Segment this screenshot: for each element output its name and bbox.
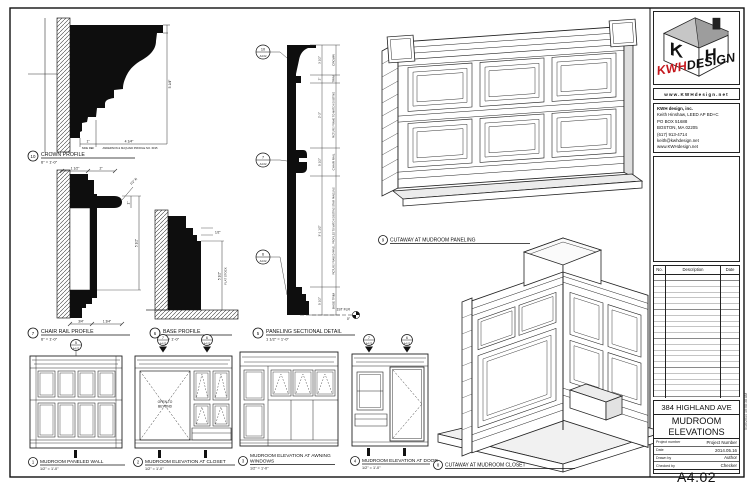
- cutaway-paneling-axon: 9 CUTAWAY AT MUDROOM PANELING: [379, 19, 643, 244]
- svg-text:PICTURE FRAMED PANEL, PROFILES: PICTURE FRAMED PANEL, PROFILES TO MATCH …: [333, 187, 336, 275]
- detail-title: MUDROOM ELEVATION AT AWNING: [250, 453, 331, 459]
- section-tick: [158, 450, 161, 458]
- wall-hatch: [57, 18, 70, 152]
- section-marker: 7 A4.02: [364, 335, 375, 353]
- svg-text:A4.02: A4.02: [160, 343, 167, 346]
- drawing-field: 1" 4 1/4" SIDE REF ANDERSON & McQUAID PR…: [0, 0, 750, 485]
- detail-title: WINDOWS: [250, 459, 274, 465]
- detail-number: 10: [31, 154, 36, 159]
- svg-text:PICTURE FRAME TO MATCH EXISTIN: PICTURE FRAME TO MATCH EXISTING: [333, 92, 336, 138]
- svg-text:A4.02: A4.02: [260, 54, 267, 58]
- open-to-beyond-note: OPEN TO: [158, 400, 173, 404]
- svg-text:A4.02: A4.02: [366, 343, 373, 346]
- rev-col-date: Date: [721, 266, 739, 274]
- svg-text:A4.02: A4.02: [204, 343, 211, 346]
- detail-scale: 1/2" = 1'-0": [250, 467, 269, 471]
- detail-number: 7: [32, 331, 35, 336]
- detail-scale: 1 1/2" = 1'-0": [266, 337, 289, 342]
- dim-text: 5 1/2": [135, 239, 139, 247]
- chair-rail-profile-detail: 1/2" R 1" 5 1/2" 3/4" 1 3/4" 7 CHAIR RAI…: [28, 170, 141, 342]
- svg-text:5 1/2": 5 1/2": [318, 297, 322, 305]
- elev-awning-windows: 3 MUDROOM ELEVATION AT AWNING WINDOWS 1/…: [239, 352, 339, 471]
- detail-title: BASE PROFILE: [163, 329, 201, 335]
- svg-text:2'-2": 2'-2": [318, 112, 322, 118]
- detail-number: 1: [32, 460, 35, 465]
- drawing-sheet: 1" 4 1/4" SIDE REF ANDERSON & McQUAID PR…: [0, 0, 750, 485]
- sheet-title: MUDROOM ELEVATIONS: [654, 415, 739, 439]
- firm-logo: K H KWHDESIGN: [653, 11, 740, 85]
- elev-closet: 7 A4.02 6 A4.02 OPEN TO BEYOND: [134, 335, 236, 472]
- svg-text:5: 5: [75, 341, 77, 345]
- detail-number: 5: [257, 331, 260, 336]
- section-marker: 6 A4.02: [202, 335, 213, 353]
- base-profile-detail: 1/2" 5 1/2" FLAT STOCK 6 BASE PROFILE 6"…: [146, 210, 238, 342]
- firm-line: www.KWHdesign.net: [657, 144, 736, 150]
- dim-text: 1": [127, 202, 131, 205]
- dim-text: 5 1/4": [168, 79, 172, 89]
- svg-text:6: 6: [262, 253, 264, 257]
- rev-col-no: No.: [654, 266, 666, 274]
- svg-text:A4.02: A4.02: [404, 343, 411, 346]
- svg-text:A4.02: A4.02: [260, 162, 267, 166]
- dim-text: 1 1/2": [71, 167, 81, 171]
- dim-text: 1 3/4": [103, 320, 111, 324]
- sheet-number: A4.02: [654, 470, 739, 485]
- open-to-beyond-note: BEYOND: [158, 405, 173, 409]
- detail-title: CROWN PROFILE: [41, 152, 85, 158]
- revision-rows: [654, 275, 739, 398]
- svg-text:A4.02: A4.02: [73, 348, 80, 351]
- dim-text: 1/2" R: [129, 176, 139, 185]
- firm-website: www.KWHdesign.net: [653, 88, 740, 100]
- detail-title: MUDROOM ELEVATION AT CLOSET: [145, 459, 226, 465]
- dim-text: 4 1/4": [125, 140, 135, 144]
- cutaway-closet-axon: 8 CUTAWAY AT MUDROOM CLOSET: [434, 238, 665, 472]
- svg-text:TRIM: TRIM: [332, 75, 336, 83]
- dim-text: 1": [86, 140, 90, 144]
- detail-number: 2: [137, 460, 140, 465]
- elev-paneled-wall: 5 A4.02 1 MUDROOM PANELED WALL: [29, 340, 126, 472]
- svg-text:6: 6: [206, 336, 208, 340]
- elev-door: 7 A4.02 6 A4.02 4 MUDROOM ELEVATION: [351, 335, 439, 471]
- consultant-box: [653, 156, 740, 262]
- section-tick: [367, 448, 370, 456]
- svg-text:5 1/2": 5 1/2": [318, 158, 322, 166]
- field-project-number: Project number Project Number: [654, 439, 739, 447]
- crown-profile-detail: 1" 4 1/4" SIDE REF ANDERSON & McQUAID PR…: [28, 18, 172, 173]
- field-date: Date 2014.05.16: [654, 447, 739, 455]
- svg-text:A4.02: A4.02: [260, 259, 267, 263]
- project-fields: Project number Project Number Date 2014.…: [654, 439, 739, 470]
- door: [390, 367, 424, 441]
- dim-text: 5 1/2": [218, 272, 222, 280]
- svg-text:BASE TRIM: BASE TRIM: [332, 292, 336, 309]
- detail-scale: 1/2" = 1'-0": [362, 466, 381, 470]
- revision-header: No. Description Date: [654, 266, 739, 275]
- plot-stamp: 5/16/2014 10:08:38 AM: [744, 393, 748, 430]
- dim-text: 2": [99, 167, 103, 171]
- section-tick: [204, 450, 207, 458]
- detail-number: 6: [154, 331, 157, 336]
- field-drawn-by: Drawn by Author: [654, 455, 739, 463]
- detail-title: PANELING SECTIONAL DETAIL: [266, 329, 342, 335]
- callout-crown-ref: 10 A4.02: [256, 45, 287, 59]
- panel-void: [70, 208, 90, 290]
- revision-table: No. Description Date: [653, 265, 740, 397]
- detail-title: MUDROOM PANELED WALL: [40, 459, 104, 465]
- svg-text:7: 7: [368, 336, 370, 340]
- detail-scale: 6" = 1'-0": [41, 337, 58, 342]
- dim-text: 3/4": [78, 320, 84, 324]
- paneling-sectional-detail: 10 A4.02 7 A4.02 6 A4.02: [253, 45, 360, 342]
- section-marker: 5 A4.02: [71, 340, 82, 357]
- sheet-title-line2: ELEVATIONS: [654, 427, 739, 438]
- bench: [192, 428, 231, 440]
- crown-silhouette: [70, 25, 163, 138]
- callout-chair-ref: 7 A4.02: [256, 153, 287, 167]
- bench: [355, 414, 387, 426]
- section-tick: [74, 450, 77, 458]
- svg-text:CHAIR RAIL: CHAIR RAIL: [332, 153, 336, 170]
- detail-scale: 6" = 1'-0": [41, 160, 58, 165]
- svg-text:CROWN: CROWN: [332, 54, 336, 66]
- detail-scale: 1/2" = 1'-0": [40, 467, 59, 471]
- project-info-block: 384 HIGHLAND AVE MUDROOM ELEVATIONS Proj…: [653, 400, 740, 474]
- svg-text:1ST FLR: 1ST FLR: [336, 308, 350, 312]
- sheet-title-line1: MUDROOM: [654, 416, 739, 427]
- detail-title: CHAIR RAIL PROFILE: [41, 329, 94, 335]
- rev-col-description: Description: [666, 266, 721, 274]
- svg-text:7: 7: [262, 156, 264, 160]
- svg-text:0": 0": [347, 317, 351, 321]
- firm-address-block: KWH design, inc. Keith Hinshaw, LEED AP …: [653, 103, 740, 153]
- section-tick: [403, 448, 406, 456]
- svg-text:3 1/2": 3 1/2": [318, 56, 322, 64]
- detail-number: 9: [382, 238, 385, 243]
- note-side-ref: SIDE REF: [82, 146, 95, 150]
- note-text: FLAT STOCK: [224, 267, 228, 285]
- note-profile-no: ANDERSON & McQUAID PROFILE NO. 6195: [102, 146, 158, 150]
- svg-text:10: 10: [261, 48, 265, 52]
- callout-base-ref: 6 A4.02: [256, 250, 287, 295]
- title-block: K H KWHDESIGN www.KWHdesign.net KWH desi…: [651, 9, 743, 476]
- detail-number: 3: [242, 459, 245, 464]
- detail-title: CUTAWAY AT MUDROOM CLOSET: [445, 463, 526, 469]
- svg-text:6: 6: [406, 336, 408, 340]
- detail-title: CUTAWAY AT MUDROOM PANELING: [390, 238, 476, 244]
- detail-number: 4: [354, 459, 357, 464]
- detail-title: MUDROOM ELEVATION AT DOOR: [362, 458, 438, 464]
- section-marker: 6 A4.02: [402, 335, 413, 353]
- detail-scale: 1/2" = 1'-0": [145, 467, 164, 471]
- svg-text:7: 7: [162, 336, 164, 340]
- field-checked-by: Checked by Checker: [654, 462, 739, 469]
- svg-text:2": 2": [318, 78, 322, 81]
- dim-text: 1/2": [215, 231, 221, 235]
- svg-text:3'-1 1/2": 3'-1 1/2": [318, 225, 322, 236]
- section-marker: 7 A4.02: [158, 335, 169, 353]
- project-address: 384 HIGHLAND AVE: [654, 401, 739, 415]
